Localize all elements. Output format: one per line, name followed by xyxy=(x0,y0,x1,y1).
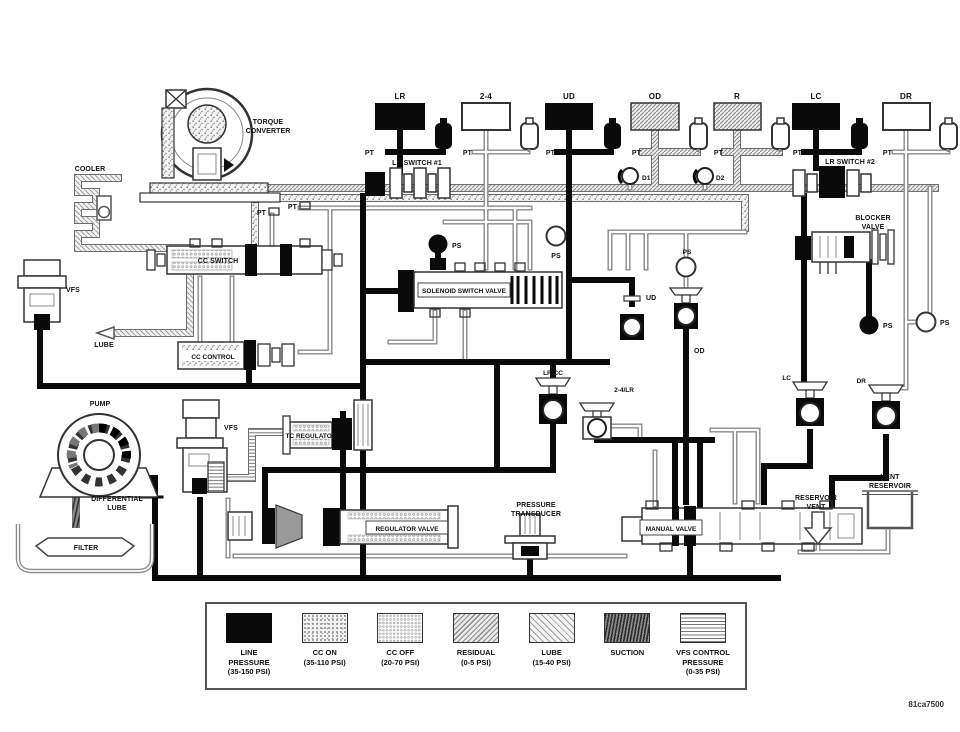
ps-label-1: PS xyxy=(452,243,462,250)
accumulator xyxy=(851,123,868,149)
check-ball-d1 xyxy=(622,168,638,184)
legend-label: CC ON xyxy=(304,648,346,658)
svg-text:RESERVOIR: RESERVOIR xyxy=(869,483,911,490)
check-ball-d2 xyxy=(697,168,713,184)
label-clutch-lr: LR xyxy=(394,92,405,101)
label-vent-reservoir: VENT xyxy=(880,474,900,481)
label-torque-converter: TORQUE xyxy=(253,119,284,126)
legend-label: CC OFF xyxy=(381,648,419,658)
pt-label-ud: PT xyxy=(546,150,556,157)
clutch-lr xyxy=(375,103,452,152)
legend-swatch-cc-on xyxy=(302,613,348,643)
vfs-solenoid-left xyxy=(18,260,66,330)
label-lr-switch-1: LR SWITCH #1 xyxy=(392,160,442,167)
legend-label: LINE xyxy=(228,648,271,658)
legend-label: SUCTION xyxy=(610,648,644,658)
accumulator xyxy=(604,123,621,149)
legend-label: RESIDUAL xyxy=(457,648,495,658)
legend-label: VFS CONTROL xyxy=(676,648,730,658)
pt-label-r: PT xyxy=(714,150,724,157)
pt-label-od: PT xyxy=(632,150,642,157)
label-tc-regulator: TC REGULATOR xyxy=(285,433,336,440)
figure-number: 81ca7500 xyxy=(858,700,944,709)
pt-label-dr: PT xyxy=(883,150,893,157)
pressure-switch xyxy=(917,313,936,332)
legend-item-line-pressure: LINE PRESSURE (35-150 PSI) xyxy=(221,613,277,677)
svg-text:VENT: VENT xyxy=(806,504,826,511)
svg-text:CONVERTER: CONVERTER xyxy=(246,128,291,135)
pressure-transducer xyxy=(505,514,555,559)
legend-swatch-residual xyxy=(453,613,499,643)
cooler xyxy=(97,196,111,220)
label-clutch-dr: DR xyxy=(900,92,912,101)
pump xyxy=(40,414,158,497)
ps-label-3: PS xyxy=(683,249,692,256)
label-cc-control: CC CONTROL xyxy=(191,354,234,361)
pressure-switch xyxy=(547,227,566,246)
solenoid-od xyxy=(670,288,702,329)
solenoid-od-label: OD xyxy=(694,348,705,355)
label-lr-switch-2: LR SWITCH #2 xyxy=(825,159,875,166)
ps-label-5: PS xyxy=(940,320,950,327)
lr-switch-2 xyxy=(793,166,871,198)
legend-item-suction: SUCTION xyxy=(599,613,655,658)
solenoid-lc-label: LC xyxy=(782,375,791,382)
legend-item-lube: LUBE (15-40 PSI) xyxy=(524,613,580,667)
label-clutch-ud: UD xyxy=(563,92,575,101)
d2-label: D2 xyxy=(716,175,725,182)
pt-label-2-4: PT xyxy=(463,150,473,157)
legend-label: LUBE xyxy=(532,648,570,658)
legend-swatch-suction xyxy=(604,613,650,643)
solenoid-lr-cc xyxy=(536,378,570,424)
accumulator xyxy=(435,123,452,149)
pt-label-converter-1: PT xyxy=(257,210,267,217)
legend-swatch-line-pressure xyxy=(226,613,272,643)
tc-regulator-valve xyxy=(283,400,372,454)
label-cc-switch: CC SWITCH xyxy=(198,258,239,265)
label-lube: LUBE xyxy=(94,342,114,349)
lr-switch-1 xyxy=(365,168,450,198)
solenoid-ud-label: UD xyxy=(646,295,656,302)
clutch-lc xyxy=(792,103,868,152)
hydraulic-schematic: TORQUE CONVERTER COOLER CC SWITCH VFS LU… xyxy=(0,0,960,732)
check-ball xyxy=(623,318,641,336)
label-differential-lube: DIFFERENTIAL xyxy=(91,496,143,503)
vfs-coil xyxy=(208,462,224,492)
torque-converter xyxy=(140,89,280,202)
ps-label-4: PS xyxy=(883,323,893,330)
label-solenoid-switch-valve: SOLENOID SWITCH VALVE xyxy=(422,288,507,295)
lube-arrow xyxy=(97,327,114,339)
label-blocker-valve: BLOCKER xyxy=(855,215,890,222)
svg-text:LUBE: LUBE xyxy=(107,505,127,512)
pt-label-lc: PT xyxy=(793,150,803,157)
label-clutch-r: R xyxy=(734,92,740,101)
check-ball xyxy=(543,400,563,420)
legend-swatch-vfs-control xyxy=(680,613,726,643)
legend-swatch-lube xyxy=(529,613,575,643)
solenoid-2-4-lr xyxy=(580,403,614,439)
solenoid-2-4-lr-label: 2-4/LR xyxy=(614,387,634,394)
check-ball xyxy=(588,419,606,437)
svg-text:VALVE: VALVE xyxy=(862,224,885,231)
accumulator xyxy=(521,123,538,149)
d1-label: D1 xyxy=(642,175,651,182)
legend-item-vfs-control: VFS CONTROL PRESSURE (0-35 PSI) xyxy=(675,613,731,677)
check-ball xyxy=(800,403,820,423)
label-regulator-valve: REGULATOR VALVE xyxy=(375,526,439,533)
label-vfs-left: VFS xyxy=(66,287,80,294)
label-reservoir-vent: RESERVOIR xyxy=(795,495,837,502)
label-clutch-2-4: 2-4 xyxy=(480,92,493,101)
accumulator xyxy=(690,123,707,149)
accumulator xyxy=(772,123,789,149)
accumulator xyxy=(940,123,957,149)
pressure-switch xyxy=(429,235,448,254)
legend: LINE PRESSURE (35-150 PSI) CC ON (35-110… xyxy=(205,602,747,690)
label-pump: PUMP xyxy=(90,401,111,408)
vent-reservoir xyxy=(862,491,918,528)
clutch-r xyxy=(714,103,789,152)
clutch-od xyxy=(631,103,707,152)
pt-label-converter-2: PT xyxy=(288,204,298,211)
legend-item-cc-on: CC ON (35-110 PSI) xyxy=(297,613,353,667)
label-manual-valve: MANUAL VALVE xyxy=(646,526,697,533)
check-ball xyxy=(677,307,695,325)
pressure-switch xyxy=(677,258,696,277)
ps-label-2: PS xyxy=(551,253,561,260)
label-filter: FILTER xyxy=(74,545,99,552)
pressure-switch xyxy=(860,316,879,335)
label-vfs-right: VFS xyxy=(224,425,238,432)
converter-ball xyxy=(188,105,226,143)
label-pressure-transducer: PRESSURE xyxy=(516,502,556,509)
check-ball xyxy=(876,406,896,426)
svg-text:TRANSDUCER: TRANSDUCER xyxy=(511,511,561,518)
blocker-valve xyxy=(795,230,894,274)
solenoid-dr-label: DR xyxy=(857,378,867,385)
vfs-solenoid-right xyxy=(177,400,227,494)
legend-item-cc-off: CC OFF (20-70 PSI) xyxy=(372,613,428,667)
solenoid-lc xyxy=(793,382,827,426)
clutch-2-4 xyxy=(462,103,538,152)
legend-item-residual: RESIDUAL (0-5 PSI) xyxy=(448,613,504,667)
label-clutch-od: OD xyxy=(649,92,661,101)
clutch-ud xyxy=(545,103,621,152)
clutch-dr xyxy=(883,103,957,152)
legend-swatch-cc-off xyxy=(377,613,423,643)
solenoid-dr xyxy=(869,385,903,429)
label-clutch-lc: LC xyxy=(810,92,821,101)
solenoid-lr-cc-label: LR/CC xyxy=(543,370,563,377)
label-cooler: COOLER xyxy=(75,166,106,173)
pt-label-lr: PT xyxy=(365,150,375,157)
